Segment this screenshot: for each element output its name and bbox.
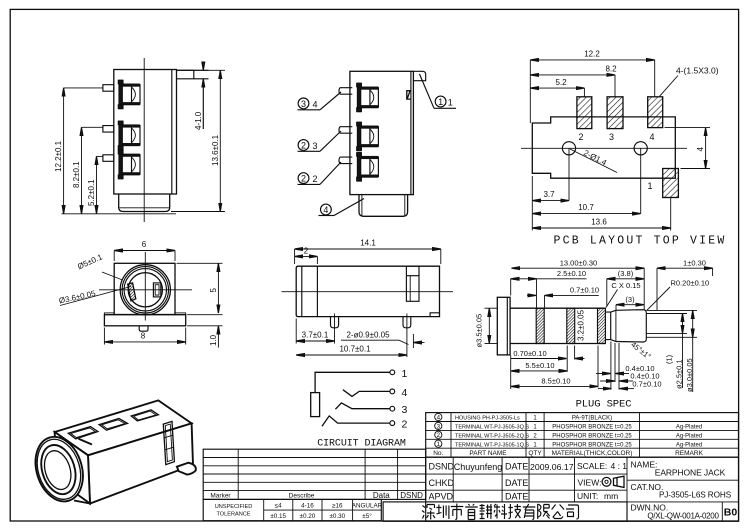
svg-text:PA-9T(BLACK): PA-9T(BLACK) (572, 416, 612, 422)
svg-text:ANGULAR: ANGULAR (352, 503, 383, 510)
svg-text:1: 1 (438, 97, 443, 107)
svg-text:Q/XL-QW-001A-0200: Q/XL-QW-001A-0200 (647, 512, 719, 521)
svg-text:4: 4 (313, 99, 318, 109)
svg-text:8.5±0.10: 8.5±0.10 (541, 377, 570, 386)
svg-text:DATE: DATE (505, 478, 528, 488)
svg-text:Chuyunfeng: Chuyunfeng (454, 462, 503, 472)
svg-text:1: 1 (437, 441, 441, 448)
svg-text:±0.15: ±0.15 (270, 513, 286, 520)
svg-text:13.6: 13.6 (591, 218, 607, 227)
svg-text:UNSPECIFIED: UNSPECIFIED (215, 504, 253, 510)
svg-text:TOLERANCE: TOLERANCE (216, 511, 250, 517)
svg-text:2-ø0.9±0.05: 2-ø0.9±0.05 (346, 330, 390, 339)
svg-text:3: 3 (402, 404, 408, 416)
svg-text:SCALE:: SCALE: (577, 461, 607, 471)
svg-text:6: 6 (142, 240, 147, 249)
svg-text:PCB LAYOUT TOP VIEW: PCB LAYOUT TOP VIEW (554, 235, 727, 248)
svg-text:±0.30: ±0.30 (329, 513, 345, 520)
svg-text:TERMINAL WT-PJ-3505-1Q.S: TERMINAL WT-PJ-3505-1Q.S (455, 442, 529, 448)
svg-text:0.7±0.10: 0.7±0.10 (570, 286, 599, 295)
svg-text:2: 2 (437, 432, 441, 439)
svg-text:DATE: DATE (505, 462, 528, 472)
svg-text:10.7±0.1: 10.7±0.1 (339, 344, 371, 353)
svg-text:MATERIAL(THICK,COLOR): MATERIAL(THICK,COLOR) (552, 450, 633, 457)
svg-text:PHOSPHOR BRONZE t=0.25: PHOSPHOR BRONZE t=0.25 (552, 433, 632, 439)
svg-text:Ag-Plated: Ag-Plated (676, 442, 702, 448)
svg-text:(3): (3) (625, 295, 635, 304)
svg-text:2: 2 (313, 174, 318, 184)
svg-text:PLUG SPEC: PLUG SPEC (576, 399, 632, 411)
svg-text:DATE: DATE (505, 491, 528, 501)
svg-text:±5°: ±5° (362, 512, 372, 520)
svg-text:1: 1 (402, 368, 408, 380)
svg-text:0.7±0.10: 0.7±0.10 (632, 379, 661, 388)
svg-text:2: 2 (402, 419, 408, 431)
svg-text:4: 4 (323, 205, 328, 215)
svg-text:4-1.0: 4-1.0 (194, 111, 203, 130)
svg-text:5: 5 (209, 288, 218, 293)
svg-text:5.2±0.1: 5.2±0.1 (87, 179, 96, 206)
svg-text:2: 2 (301, 140, 306, 150)
svg-text:B0: B0 (724, 507, 738, 519)
svg-text:3.7±0.1: 3.7±0.1 (302, 330, 329, 339)
svg-text:1: 1 (448, 98, 453, 108)
svg-text:3.2±0.05: 3.2±0.05 (577, 309, 586, 341)
svg-text:2.5±0.10: 2.5±0.10 (557, 269, 586, 278)
svg-text:EARPHONE JACK: EARPHONE JACK (655, 468, 726, 478)
svg-text:13.6±0.1: 13.6±0.1 (211, 134, 220, 166)
svg-text:1±0.30: 1±0.30 (683, 258, 706, 267)
svg-text:UNIT:: UNIT: (577, 491, 598, 501)
svg-text:ø3.0±0.05: ø3.0±0.05 (685, 358, 694, 392)
svg-text:3: 3 (609, 132, 614, 142)
svg-text:4-(1.5X3.0): 4-(1.5X3.0) (676, 66, 719, 76)
svg-text:QTY: QTY (528, 450, 542, 457)
svg-text:No.: No. (433, 450, 443, 457)
svg-text:Data: Data (373, 491, 390, 500)
svg-text:12.2±0.1: 12.2±0.1 (54, 140, 63, 172)
svg-text:1.0: 1.0 (209, 334, 218, 346)
svg-text:0.70±0.10: 0.70±0.10 (513, 349, 546, 358)
svg-text:PHOSPHOR BRONZE t=0.25: PHOSPHOR BRONZE t=0.25 (552, 442, 632, 448)
svg-text:8.2: 8.2 (605, 65, 617, 74)
svg-text:±0.20: ±0.20 (300, 513, 316, 520)
svg-text:5.2: 5.2 (555, 78, 567, 87)
svg-text:CIRCUIT DIAGRAM: CIRCUIT DIAGRAM (317, 439, 406, 450)
svg-text:4 : 1: 4 : 1 (611, 461, 628, 471)
svg-text:12.2: 12.2 (584, 50, 600, 59)
svg-text:VIEW:: VIEW: (578, 477, 602, 487)
svg-text:4: 4 (649, 132, 654, 142)
svg-text:8: 8 (141, 331, 146, 340)
svg-text:8.2±0.1: 8.2±0.1 (72, 161, 81, 188)
svg-text:2: 2 (578, 132, 583, 142)
svg-text:4: 4 (696, 147, 705, 152)
svg-text:4-16: 4-16 (301, 503, 314, 510)
svg-text:R0.20±0.10: R0.20±0.10 (671, 278, 710, 287)
svg-text:10.7: 10.7 (578, 203, 594, 212)
svg-text:Describe: Describe (289, 492, 315, 499)
svg-text:HOUSING PH-PJ-3505-Ls: HOUSING PH-PJ-3505-Ls (455, 416, 520, 422)
svg-text:Ag-Plated: Ag-Plated (676, 425, 702, 431)
svg-text:4: 4 (437, 414, 441, 421)
svg-text:≥16: ≥16 (332, 503, 343, 510)
svg-text:TERMINAL WT-PJ-3505-3Q.S: TERMINAL WT-PJ-3505-3Q.S (455, 425, 529, 431)
svg-text:REMARK: REMARK (675, 450, 703, 457)
svg-text:(1): (1) (665, 354, 674, 364)
svg-text:2: 2 (301, 174, 306, 184)
svg-text:5.5±0.10: 5.5±0.10 (525, 361, 554, 370)
svg-text:TERMINAL WT-PJ-3505-2Q.S: TERMINAL WT-PJ-3505-2Q.S (455, 433, 529, 439)
svg-text:≤4: ≤4 (275, 503, 282, 510)
svg-text:(3.8): (3.8) (618, 269, 634, 278)
svg-text:NAME:: NAME: (631, 460, 658, 470)
svg-text:PJ-3505-L6S ROHS: PJ-3505-L6S ROHS (659, 491, 732, 500)
svg-text:PART NAME: PART NAME (469, 450, 507, 457)
svg-text:PHOSPHOR BRONZE t=0.25: PHOSPHOR BRONZE t=0.25 (552, 425, 632, 431)
svg-text:3: 3 (437, 423, 441, 430)
svg-text:CHKD: CHKD (429, 478, 455, 488)
svg-text:4: 4 (402, 387, 408, 399)
svg-text:14.1: 14.1 (360, 239, 376, 248)
svg-text:3.7: 3.7 (543, 190, 555, 199)
svg-text:1: 1 (647, 181, 652, 191)
svg-text:ø3.5±0.05: ø3.5±0.05 (475, 314, 484, 348)
svg-text:2009.06.17: 2009.06.17 (530, 462, 574, 472)
svg-text:3: 3 (313, 141, 318, 151)
svg-text:mm: mm (604, 491, 618, 501)
svg-text:DSND: DSND (400, 491, 423, 500)
svg-text:Marker: Marker (210, 492, 231, 499)
svg-text:C X 0.15: C X 0.15 (611, 281, 640, 290)
svg-text:DSND: DSND (429, 462, 455, 472)
svg-text:13.00±0.30: 13.00±0.30 (560, 258, 597, 267)
svg-text:3: 3 (301, 99, 306, 109)
svg-text:APVD: APVD (429, 491, 454, 501)
svg-text:Ag-Plated: Ag-Plated (676, 433, 702, 439)
svg-text:ø2.5±0.1: ø2.5±0.1 (675, 359, 684, 389)
svg-text:2: 2 (304, 246, 309, 255)
